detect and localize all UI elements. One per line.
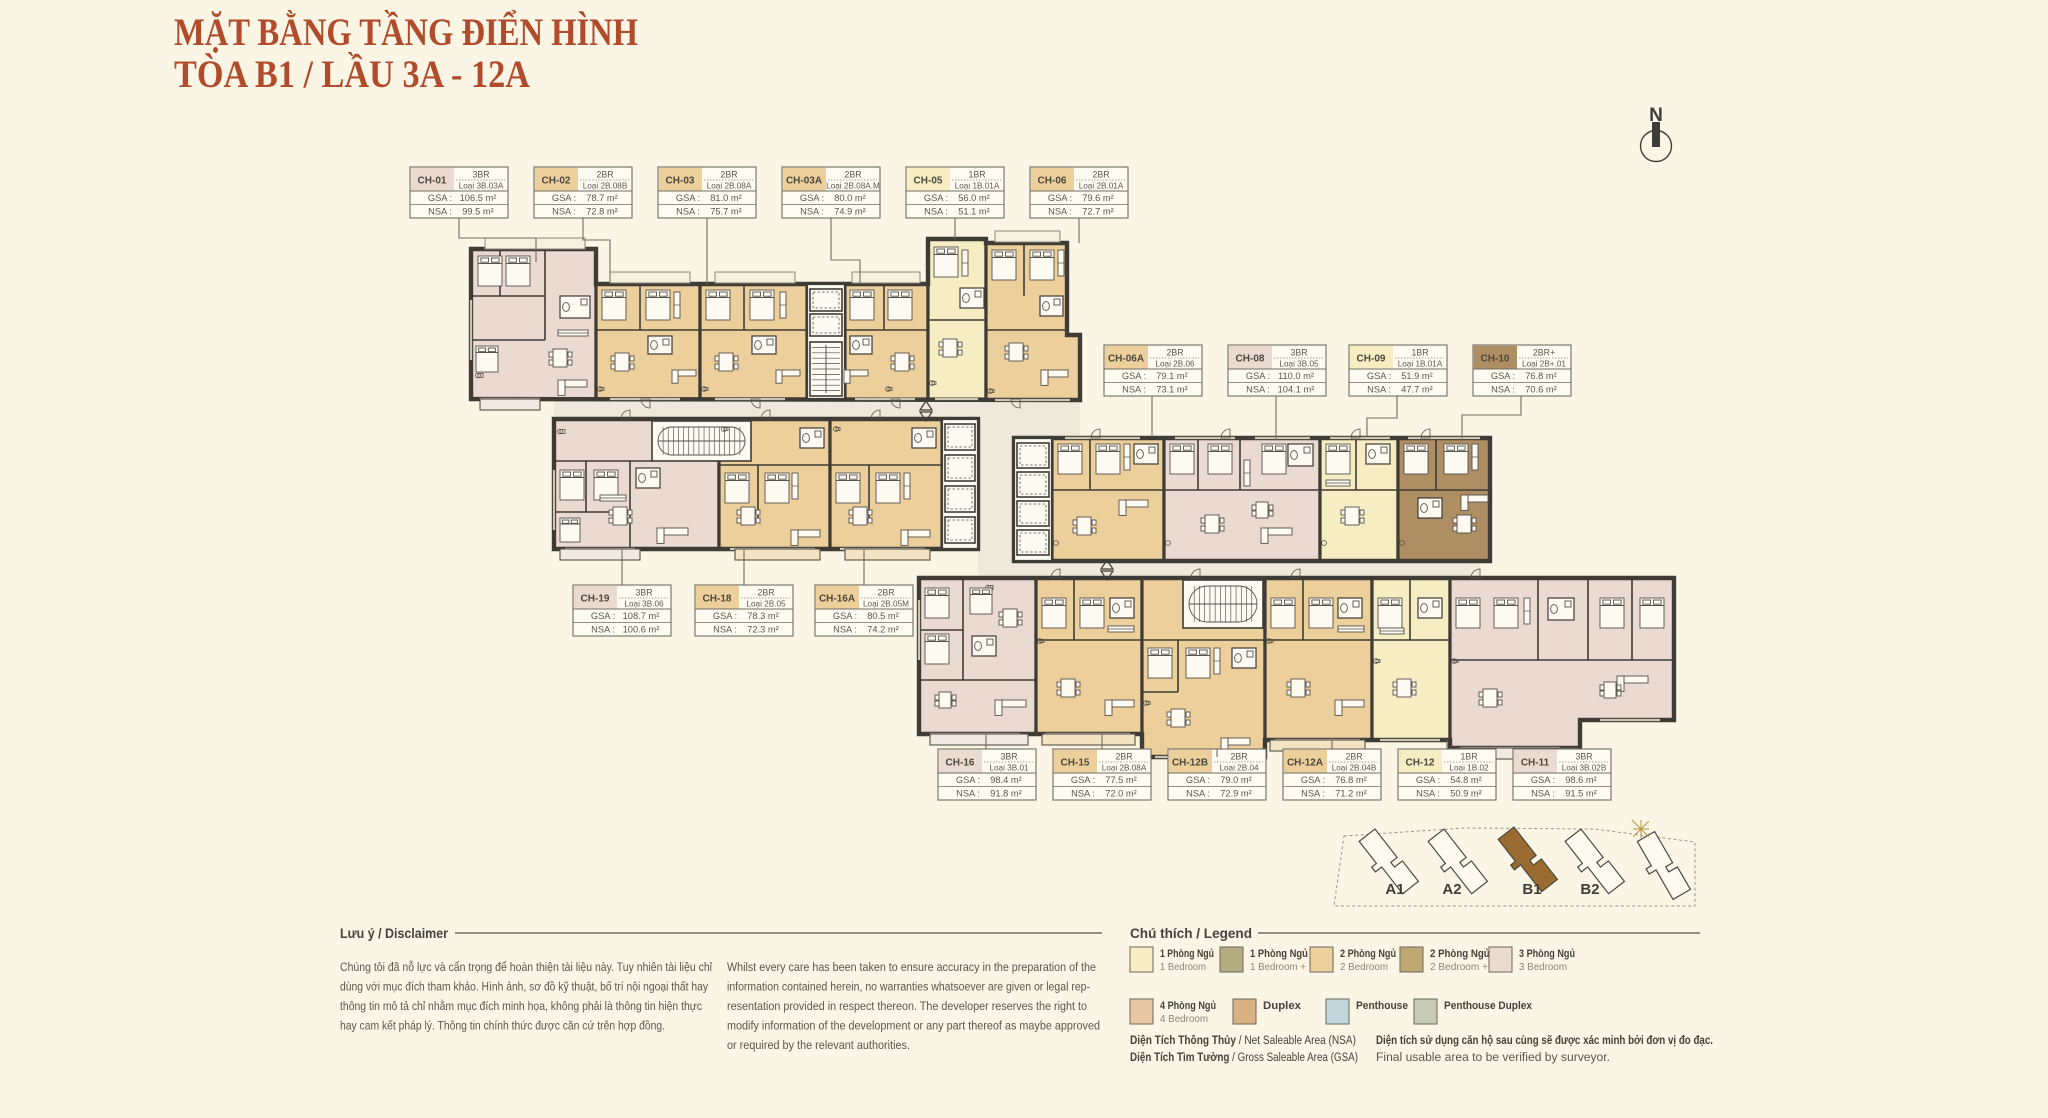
svg-text:GSA :: GSA : <box>1301 775 1325 785</box>
svg-text:GSA :: GSA : <box>924 193 948 203</box>
svg-text:CH-02: CH-02 <box>542 176 571 187</box>
svg-text:4 Phòng Ngủ: 4 Phòng Ngủ <box>1160 1000 1216 1012</box>
svg-text:CH-15: CH-15 <box>1061 758 1090 769</box>
svg-text:NSA :: NSA : <box>428 207 452 217</box>
svg-text:Loại 3B.06: Loại 3B.06 <box>624 600 664 609</box>
svg-text:72.7 m²: 72.7 m² <box>1082 207 1114 217</box>
svg-text:NSA :: NSA : <box>956 789 980 799</box>
svg-text:GSA :: GSA : <box>956 775 980 785</box>
svg-text:NSA :: NSA : <box>1367 385 1391 395</box>
svg-text:1BR: 1BR <box>1460 752 1477 762</box>
svg-text:GSA :: GSA : <box>552 193 576 203</box>
svg-text:100.6 m²: 100.6 m² <box>623 625 660 635</box>
svg-text:resentation provided in respec: resentation provided in respect thereon.… <box>727 999 1087 1013</box>
svg-text:CH-05: CH-05 <box>914 176 943 187</box>
svg-text:Loại 2B.08B: Loại 2B.08B <box>583 182 628 191</box>
svg-text:1 Phòng Ngủ +: 1 Phòng Ngủ + <box>1250 948 1316 960</box>
svg-text:2BR: 2BR <box>1345 752 1362 762</box>
svg-text:2BR: 2BR <box>844 170 861 180</box>
svg-text:74.2 m²: 74.2 m² <box>867 625 899 635</box>
svg-text:Loại 2B.04: Loại 2B.04 <box>1219 764 1259 773</box>
svg-text:Diện tích sử dụng căn hộ sau c: Diện tích sử dụng căn hộ sau cùng sẽ đượ… <box>1376 1033 1713 1047</box>
svg-text:B1: B1 <box>1522 881 1541 898</box>
svg-text:Loại 2B+.01: Loại 2B+.01 <box>1522 360 1566 369</box>
svg-text:1BR: 1BR <box>1411 348 1428 358</box>
svg-text:NSA :: NSA : <box>1416 789 1440 799</box>
svg-text:CH-09: CH-09 <box>1357 354 1386 365</box>
svg-text:NSA :: NSA : <box>800 207 824 217</box>
svg-text:GSA :: GSA : <box>1491 371 1515 381</box>
svg-text:GSA :: GSA : <box>676 193 700 203</box>
svg-text:Loại 2B.01A: Loại 2B.01A <box>1079 182 1124 191</box>
svg-text:1 Bedroom: 1 Bedroom <box>1160 961 1206 973</box>
svg-text:thông tin mô tả chỉ nhằm mục đ: thông tin mô tả chỉ nhằm mục đích minh h… <box>340 998 702 1013</box>
svg-text:CH-10: CH-10 <box>1481 354 1510 365</box>
svg-text:NSA :: NSA : <box>1071 789 1095 799</box>
svg-text:3BR: 3BR <box>472 170 489 180</box>
svg-text:76.8 m²: 76.8 m² <box>1525 371 1557 381</box>
svg-text:2 Phòng Ngủ: 2 Phòng Ngủ <box>1340 948 1396 960</box>
svg-text:dùng với mục đích tham khảo. H: dùng với mục đích tham khảo. Hình ảnh, s… <box>340 980 709 994</box>
svg-text:Duplex: Duplex <box>1263 1000 1302 1012</box>
svg-text:80.0 m²: 80.0 m² <box>834 193 866 203</box>
svg-text:81.0 m²: 81.0 m² <box>710 193 742 203</box>
svg-text:Loại 1B.01A: Loại 1B.01A <box>1398 360 1443 369</box>
svg-text:CH-01: CH-01 <box>418 176 447 187</box>
svg-text:NSA :: NSA : <box>552 207 576 217</box>
svg-text:Loại 1B.02: Loại 1B.02 <box>1449 764 1489 773</box>
svg-text:CH-18: CH-18 <box>703 594 732 605</box>
svg-text:Whilst every care has been tak: Whilst every care has been taken to ensu… <box>727 960 1096 974</box>
svg-text:NSA :: NSA : <box>1301 789 1325 799</box>
svg-text:Loại 3B.01: Loại 3B.01 <box>989 764 1029 773</box>
svg-text:A1: A1 <box>1385 881 1404 898</box>
svg-text:Lưu ý / Disclaimer: Lưu ý / Disclaimer <box>340 926 449 941</box>
svg-text:2BR: 2BR <box>1115 752 1132 762</box>
svg-text:CH-03A: CH-03A <box>786 176 822 187</box>
svg-text:106.5 m²: 106.5 m² <box>460 193 497 203</box>
svg-text:98.4 m²: 98.4 m² <box>990 775 1022 785</box>
svg-text:GSA :: GSA : <box>1122 371 1146 381</box>
svg-text:2BR: 2BR <box>877 588 894 598</box>
svg-text:104.1 m²: 104.1 m² <box>1278 385 1315 395</box>
svg-text:3 Bedroom: 3 Bedroom <box>1519 961 1567 973</box>
svg-text:79.1 m²: 79.1 m² <box>1156 371 1188 381</box>
svg-text:98.6 m²: 98.6 m² <box>1565 775 1597 785</box>
svg-text:CH-12A: CH-12A <box>1287 758 1323 769</box>
svg-text:2BR: 2BR <box>1230 752 1247 762</box>
svg-text:2BR: 2BR <box>720 170 737 180</box>
svg-text:NSA :: NSA : <box>1531 789 1555 799</box>
svg-text:56.0 m²: 56.0 m² <box>958 193 990 203</box>
svg-text:Penthouse: Penthouse <box>1356 1000 1408 1012</box>
svg-text:NSA :: NSA : <box>1491 385 1515 395</box>
svg-text:GSA :: GSA : <box>591 611 615 621</box>
svg-text:CH-03: CH-03 <box>666 176 695 187</box>
svg-text:51.1 m²: 51.1 m² <box>958 207 990 217</box>
svg-text:3BR: 3BR <box>1000 752 1017 762</box>
svg-text:NSA :: NSA : <box>591 625 615 635</box>
svg-text:NSA :: NSA : <box>1122 385 1146 395</box>
svg-text:Loại 2B.06: Loại 2B.06 <box>1155 360 1195 369</box>
svg-text:51.9 m²: 51.9 m² <box>1401 371 1433 381</box>
svg-text:Loại 3B.03A: Loại 3B.03A <box>459 182 504 191</box>
svg-text:1BR: 1BR <box>968 170 985 180</box>
svg-text:modify information of the deve: modify information of the development or… <box>727 1019 1100 1033</box>
svg-text:4 Bedroom: 4 Bedroom <box>1160 1013 1208 1025</box>
svg-text:Loại 2B.04B: Loại 2B.04B <box>1332 764 1377 773</box>
svg-text:GSA :: GSA : <box>428 193 452 203</box>
svg-text:GSA :: GSA : <box>1531 775 1555 785</box>
svg-text:72.9 m²: 72.9 m² <box>1220 789 1252 799</box>
svg-text:2BR+: 2BR+ <box>1533 348 1555 358</box>
svg-text:72.0 m²: 72.0 m² <box>1105 789 1137 799</box>
svg-text:91.8 m²: 91.8 m² <box>990 789 1022 799</box>
svg-text:80.5 m²: 80.5 m² <box>867 611 899 621</box>
svg-text:71.2 m²: 71.2 m² <box>1335 789 1367 799</box>
svg-text:MẶT BẰNG TẦNG ĐIỂN HÌNH: MẶT BẰNG TẦNG ĐIỂN HÌNH <box>174 8 638 54</box>
svg-text:CH-12B: CH-12B <box>1172 758 1208 769</box>
svg-text:72.8 m²: 72.8 m² <box>586 207 618 217</box>
svg-text:110.0 m²: 110.0 m² <box>1278 371 1314 381</box>
svg-text:79.0 m²: 79.0 m² <box>1220 775 1252 785</box>
svg-text:GSA :: GSA : <box>833 611 857 621</box>
svg-text:A2: A2 <box>1442 881 1461 898</box>
svg-text:NSA :: NSA : <box>924 207 948 217</box>
svg-text:NSA :: NSA : <box>1048 207 1072 217</box>
svg-text:2 Bedroom: 2 Bedroom <box>1340 961 1388 973</box>
svg-text:Chúng tôi đã nỗ lực và cẩn trọ: Chúng tôi đã nỗ lực và cẩn trọng để hoàn… <box>340 959 712 974</box>
svg-text:2BR: 2BR <box>1166 348 1183 358</box>
svg-text:50.9 m²: 50.9 m² <box>1450 789 1482 799</box>
svg-text:CH-12: CH-12 <box>1406 758 1435 769</box>
svg-text:Loại 1B.01A: Loại 1B.01A <box>955 182 1000 191</box>
svg-text:NSA :: NSA : <box>1246 385 1270 395</box>
svg-text:99.5 m²: 99.5 m² <box>462 207 494 217</box>
svg-text:70.6 m²: 70.6 m² <box>1525 385 1557 395</box>
svg-text:GSA :: GSA : <box>1367 371 1391 381</box>
svg-text:3BR: 3BR <box>1290 348 1307 358</box>
svg-text:GSA :: GSA : <box>1416 775 1440 785</box>
svg-text:Diện Tích Tìm Tường / Gross Sa: Diện Tích Tìm Tường / Gross Saleable Are… <box>1130 1050 1358 1064</box>
svg-text:TÒA B1 / LẦU 3A - 12A: TÒA B1 / LẦU 3A - 12A <box>174 51 530 96</box>
svg-text:B2: B2 <box>1580 881 1599 898</box>
svg-text:CH-16A: CH-16A <box>819 594 855 605</box>
svg-text:GSA :: GSA : <box>1186 775 1210 785</box>
svg-text:78.7 m²: 78.7 m² <box>586 193 618 203</box>
svg-text:CH-19: CH-19 <box>581 594 610 605</box>
svg-text:Loại 2B.08A: Loại 2B.08A <box>707 182 752 191</box>
svg-text:1 Phòng Ngủ: 1 Phòng Ngủ <box>1160 948 1214 960</box>
svg-text:54.8 m²: 54.8 m² <box>1450 775 1482 785</box>
svg-text:2 Phòng Ngủ +: 2 Phòng Ngủ + <box>1430 948 1498 960</box>
svg-text:91.5 m²: 91.5 m² <box>1565 789 1597 799</box>
svg-text:75.7 m²: 75.7 m² <box>710 207 742 217</box>
svg-text:Loại 2B.08A: Loại 2B.08A <box>1102 764 1147 773</box>
svg-text:GSA :: GSA : <box>713 611 737 621</box>
svg-text:2BR: 2BR <box>757 588 774 598</box>
svg-text:CH-06A: CH-06A <box>1108 354 1144 365</box>
svg-text:3BR: 3BR <box>635 588 652 598</box>
svg-text:GSA :: GSA : <box>1246 371 1270 381</box>
svg-text:information contained herein,: information contained herein, no warrant… <box>727 980 1090 994</box>
svg-text:Loại 2B.05: Loại 2B.05 <box>746 600 786 609</box>
svg-text:Diện Tích Thông Thủy / Net Sal: Diện Tích Thông Thủy / Net Saleable Area… <box>1130 1033 1356 1047</box>
svg-text:3BR: 3BR <box>1575 752 1592 762</box>
svg-text:GSA :: GSA : <box>800 193 824 203</box>
svg-text:74.9 m²: 74.9 m² <box>834 207 866 217</box>
svg-text:2BR: 2BR <box>1092 170 1109 180</box>
svg-text:76.8 m²: 76.8 m² <box>1335 775 1367 785</box>
svg-text:CH-06: CH-06 <box>1038 176 1067 187</box>
svg-text:72.3 m²: 72.3 m² <box>747 625 779 635</box>
svg-text:2 Bedroom +: 2 Bedroom + <box>1430 961 1488 973</box>
svg-text:GSA :: GSA : <box>1048 193 1072 203</box>
svg-text:1 Bedroom +: 1 Bedroom + <box>1250 961 1306 973</box>
svg-text:2BR: 2BR <box>596 170 613 180</box>
svg-text:NSA :: NSA : <box>833 625 857 635</box>
svg-text:78.3 m²: 78.3 m² <box>747 611 779 621</box>
svg-text:Loại 3B.02B: Loại 3B.02B <box>1562 764 1607 773</box>
svg-text:CH-08: CH-08 <box>1236 354 1265 365</box>
svg-text:3 Phòng Ngủ: 3 Phòng Ngủ <box>1519 948 1575 960</box>
svg-text:NSA :: NSA : <box>713 625 737 635</box>
svg-text:108.7 m²: 108.7 m² <box>623 611 660 621</box>
svg-text:Chú thích / Legend: Chú thích / Legend <box>1130 926 1252 941</box>
svg-text:47.7 m²: 47.7 m² <box>1401 385 1433 395</box>
svg-text:or required by the relevant au: or required by the relevant authorities. <box>727 1038 910 1052</box>
svg-text:CH-11: CH-11 <box>1521 758 1550 769</box>
svg-text:NSA :: NSA : <box>1186 789 1210 799</box>
svg-text:Final usable area to be verifi: Final usable area to be verified by surv… <box>1376 1050 1610 1064</box>
svg-text:Penthouse Duplex: Penthouse Duplex <box>1444 1000 1533 1012</box>
svg-text:CH-16: CH-16 <box>946 758 975 769</box>
svg-text:Loại 3B.05: Loại 3B.05 <box>1279 360 1319 369</box>
svg-text:NSA :: NSA : <box>676 207 700 217</box>
svg-text:hay cam kết pháp lý. Thông tin: hay cam kết pháp lý. Thông tin chính thứ… <box>340 1019 665 1033</box>
svg-text:Loại 2B.05M: Loại 2B.05M <box>863 600 909 609</box>
svg-text:77.5 m²: 77.5 m² <box>1105 775 1137 785</box>
svg-text:73.1 m²: 73.1 m² <box>1156 385 1188 395</box>
svg-text:79.6 m²: 79.6 m² <box>1082 193 1114 203</box>
svg-text:GSA :: GSA : <box>1071 775 1095 785</box>
svg-text:Loại 2B.08A.M: Loại 2B.08A.M <box>826 182 880 191</box>
